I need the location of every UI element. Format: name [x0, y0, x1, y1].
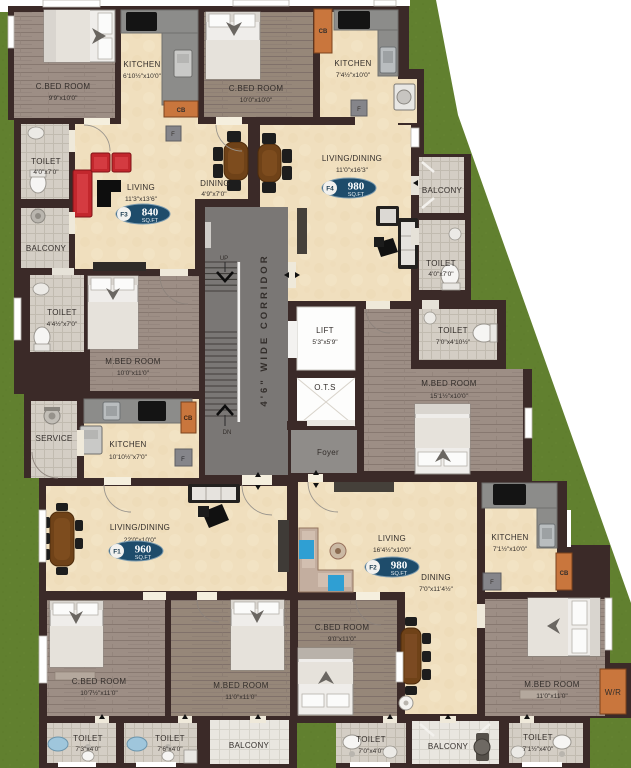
svg-text:TOILET: TOILET — [73, 734, 103, 743]
svg-text:M.BED ROOM: M.BED ROOM — [524, 680, 579, 689]
svg-text:SQ.FT: SQ.FT — [135, 555, 152, 561]
svg-text:F: F — [181, 457, 185, 463]
svg-text:TOILET: TOILET — [155, 734, 185, 743]
svg-text:LIVING: LIVING — [378, 534, 406, 543]
svg-text:DN: DN — [223, 430, 232, 436]
svg-text:TOILET: TOILET — [438, 326, 468, 335]
svg-text:4'6" WIDE CORRIDOR: 4'6" WIDE CORRIDOR — [259, 253, 270, 406]
svg-text:15'1½"x10'0": 15'1½"x10'0" — [430, 392, 469, 400]
svg-text:KITCHEN: KITCHEN — [109, 440, 146, 449]
svg-text:F1: F1 — [113, 549, 121, 556]
svg-text:980: 980 — [348, 181, 365, 193]
svg-text:C.BED ROOM: C.BED ROOM — [229, 84, 284, 93]
svg-text:7'4½"x10'0": 7'4½"x10'0" — [336, 71, 371, 79]
svg-text:BALCONY: BALCONY — [229, 741, 270, 750]
svg-text:960: 960 — [135, 544, 152, 556]
svg-text:16'4½"x10'0": 16'4½"x10'0" — [373, 546, 412, 554]
svg-text:11'0"x11'0": 11'0"x11'0" — [536, 693, 568, 700]
svg-text:LIFT: LIFT — [316, 326, 334, 335]
svg-text:UP: UP — [220, 256, 228, 262]
svg-text:980: 980 — [391, 560, 408, 572]
svg-text:DINING: DINING — [200, 179, 230, 188]
svg-text:4'0"x7'0": 4'0"x7'0" — [33, 169, 59, 176]
svg-text:10'0"x11'0": 10'0"x11'0" — [117, 370, 150, 377]
svg-text:BALCONY: BALCONY — [428, 742, 469, 751]
svg-text:KITCHEN: KITCHEN — [123, 60, 160, 69]
svg-text:11'0"x11'0": 11'0"x11'0" — [225, 694, 257, 701]
svg-text:KITCHEN: KITCHEN — [491, 533, 528, 542]
svg-text:7'3"x4'0": 7'3"x4'0" — [75, 746, 101, 753]
svg-text:C.BED ROOM: C.BED ROOM — [36, 82, 91, 91]
svg-text:7'0"x11'4½": 7'0"x11'4½" — [419, 585, 454, 593]
svg-text:TOILET: TOILET — [47, 308, 77, 317]
svg-text:10'7½"x11'0": 10'7½"x11'0" — [80, 689, 118, 697]
svg-text:840: 840 — [142, 207, 159, 219]
svg-text:10'0"x10'0": 10'0"x10'0" — [240, 97, 273, 104]
svg-text:4'4½"x7'0": 4'4½"x7'0" — [47, 320, 78, 328]
svg-text:C.BED ROOM: C.BED ROOM — [72, 677, 127, 686]
svg-text:CB: CB — [560, 571, 569, 577]
svg-text:9'9"x10'0": 9'9"x10'0" — [49, 95, 78, 102]
svg-text:KITCHEN: KITCHEN — [334, 59, 371, 68]
svg-text:C.BED ROOM: C.BED ROOM — [315, 623, 370, 632]
svg-text:4'0"x7'0": 4'0"x7'0" — [428, 271, 454, 278]
svg-text:7'0"x4'10½": 7'0"x4'10½" — [436, 338, 471, 346]
svg-text:SQ.FT: SQ.FT — [348, 192, 365, 198]
svg-text:7'0"x4'0": 7'0"x4'0" — [358, 748, 384, 755]
svg-text:LIVING/DINING: LIVING/DINING — [110, 523, 170, 532]
svg-text:SQ.FT: SQ.FT — [142, 218, 159, 224]
svg-text:CB: CB — [184, 416, 193, 422]
svg-text:O.T.S: O.T.S — [314, 383, 336, 392]
svg-text:CB: CB — [177, 108, 186, 114]
svg-text:M.BED ROOM: M.BED ROOM — [105, 357, 160, 366]
svg-text:7'6"x4'0": 7'6"x4'0" — [157, 746, 183, 753]
svg-text:BALCONY: BALCONY — [26, 244, 67, 253]
svg-text:F: F — [490, 580, 494, 586]
svg-text:Foyer: Foyer — [317, 448, 339, 457]
svg-text:F: F — [357, 107, 361, 113]
svg-text:SERVICE: SERVICE — [35, 434, 72, 443]
svg-text:TOILET: TOILET — [356, 735, 386, 744]
svg-text:M.BED ROOM: M.BED ROOM — [213, 681, 268, 690]
svg-text:F: F — [171, 132, 175, 138]
svg-text:LIVING: LIVING — [127, 183, 155, 192]
svg-text:F4: F4 — [326, 186, 334, 193]
svg-text:F3: F3 — [120, 212, 128, 219]
svg-text:5'3"x5'9": 5'3"x5'9" — [312, 339, 338, 346]
svg-text:11'3"x13'6": 11'3"x13'6" — [125, 196, 158, 203]
svg-text:BALCONY: BALCONY — [422, 186, 463, 195]
svg-text:6'10½"x10'0": 6'10½"x10'0" — [123, 72, 162, 80]
svg-text:DINING: DINING — [421, 573, 451, 582]
svg-text:F2: F2 — [369, 565, 377, 572]
svg-text:SQ.FT: SQ.FT — [391, 571, 408, 577]
svg-text:M.BED ROOM: M.BED ROOM — [421, 379, 476, 388]
svg-text:LIVING/DINING: LIVING/DINING — [322, 154, 382, 163]
svg-text:9'0"x11'0": 9'0"x11'0" — [328, 636, 357, 643]
svg-text:TOILET: TOILET — [426, 259, 456, 268]
svg-text:W/R: W/R — [605, 688, 621, 697]
svg-text:10'10½"x7'0": 10'10½"x7'0" — [109, 453, 148, 461]
svg-text:TOILET: TOILET — [523, 733, 553, 742]
svg-text:7'1½"x10'0": 7'1½"x10'0" — [493, 545, 528, 553]
svg-text:CB: CB — [319, 29, 328, 35]
svg-text:11'0"x16'3": 11'0"x16'3" — [336, 167, 369, 174]
svg-text:4'9"x7'0": 4'9"x7'0" — [201, 191, 227, 198]
svg-text:7'1½"x4'0": 7'1½"x4'0" — [523, 745, 554, 753]
svg-text:TOILET: TOILET — [31, 157, 61, 166]
